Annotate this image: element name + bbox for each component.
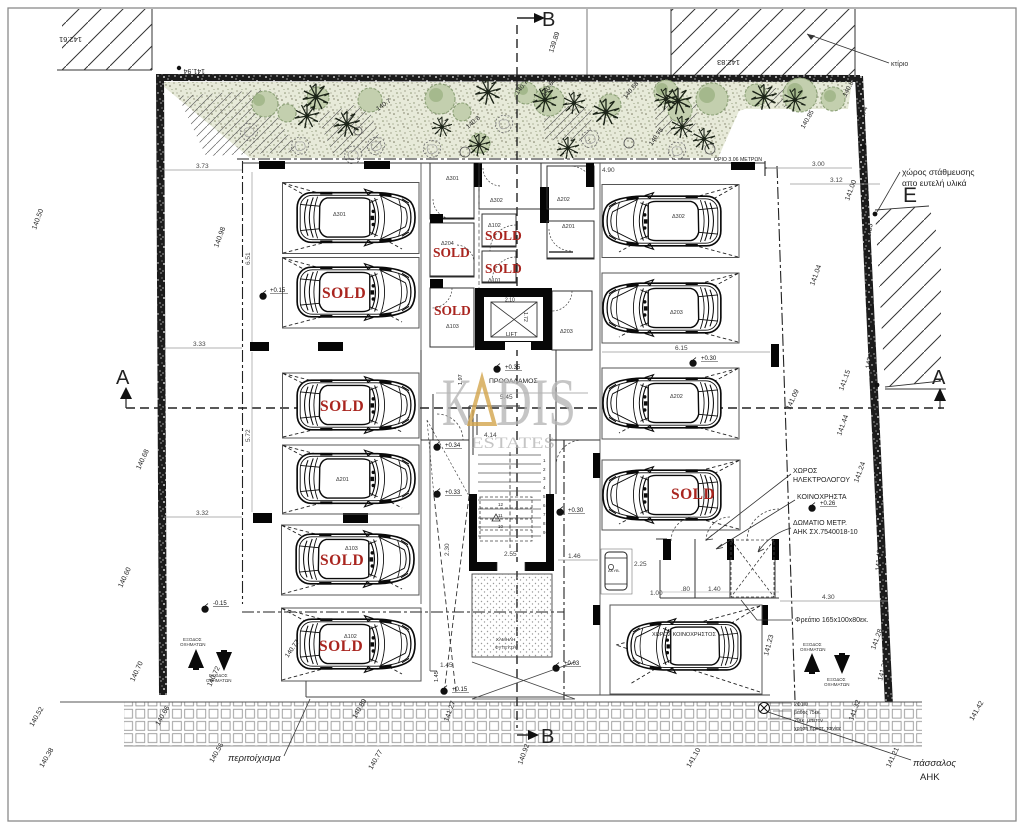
svg-text:ΦΥΤΕΥΣΗ: ΦΥΤΕΥΣΗ [495,645,516,650]
svg-text:ESTATES: ESTATES [471,435,555,452]
svg-text:SOLD: SOLD [320,552,364,569]
svg-text:20εκ. μπετόν: 20εκ. μπετόν [794,717,823,724]
svg-text:ΔΚΥΒ.: ΔΚΥΒ. [608,568,620,573]
svg-text:+0.34: +0.34 [445,443,461,449]
svg-text:Δ301: Δ301 [333,212,346,218]
svg-text:B: B [542,9,555,31]
svg-text:ΔΩΜΑΤΙΟ ΜΕΤΡ.: ΔΩΜΑΤΙΟ ΜΕΤΡ. [793,520,847,527]
svg-text:ΟΧΗΜΑΤΩΝ: ΟΧΗΜΑΤΩΝ [800,647,825,652]
svg-text:SOLD: SOLD [671,486,715,503]
svg-text:+0.30: +0.30 [568,508,584,514]
svg-text:πάσσαλος: πάσσαλος [913,758,956,769]
svg-text:ΟΧΗΜΑΤΩΝ: ΟΧΗΜΑΤΩΝ [824,682,849,687]
svg-text:+0.15: +0.15 [270,288,286,294]
svg-text:Δ302: Δ302 [672,214,685,220]
svg-text:B: B [541,726,554,748]
svg-text:12: 12 [498,502,504,507]
svg-text:2.30: 2.30 [444,543,451,556]
svg-text:3.33: 3.33 [193,341,206,348]
svg-text:5.72: 5.72 [245,429,252,442]
svg-text:Δ202: Δ202 [557,197,570,203]
svg-text:SOLD: SOLD [322,285,366,302]
svg-text:K: K [442,364,472,440]
svg-text:DIS: DIS [496,364,576,440]
svg-text:1.45: 1.45 [434,671,440,682]
svg-text:Δ301: Δ301 [446,176,459,182]
svg-text:3.73: 3.73 [196,163,209,170]
svg-text:ΧΩΡΟΣ ΚΟΙΝΟΧΡΗΣΤΟΣ: ΧΩΡΟΣ ΚΟΙΝΟΧΡΗΣΤΟΣ [652,632,716,638]
svg-text:ΚΟΙΝΟΧΡΗΣΤΑ: ΚΟΙΝΟΧΡΗΣΤΑ [797,494,847,501]
svg-text:1.00: 1.00 [650,590,663,597]
svg-text:1.72: 1.72 [522,312,528,322]
svg-text:ΟΧΗΜΑΤΩΝ: ΟΧΗΜΑΤΩΝ [180,642,205,647]
svg-text:SOLD: SOLD [319,638,363,655]
svg-text:4.30: 4.30 [822,594,835,601]
svg-text:2.55: 2.55 [504,551,517,558]
svg-text:141.94: 141.94 [183,67,205,74]
svg-text:Δ203: Δ203 [560,329,573,335]
svg-text:SOLD: SOLD [320,398,364,415]
svg-text:ΧΩΡΟΣ: ΧΩΡΟΣ [793,468,818,475]
svg-text:1.45: 1.45 [440,662,453,669]
svg-text:περιτοίχισμα: περιτοίχισμα [228,753,281,764]
svg-text:+0.03: +0.03 [564,661,580,667]
svg-text:Δ201: Δ201 [336,477,349,483]
svg-text:6.51: 6.51 [245,252,252,265]
svg-text:+0.26: +0.26 [820,501,836,507]
svg-text:Δ203: Δ203 [670,310,683,316]
svg-text:απο ευτελή υλικά: απο ευτελή υλικά [902,178,967,188]
svg-text:ΧΑΜΗΛΗ: ΧΑΜΗΛΗ [496,637,515,642]
svg-text:ΑΗΚ: ΑΗΚ [920,772,940,783]
svg-text:Δ201: Δ201 [562,224,575,230]
svg-text:LIFT: LIFT [506,332,518,338]
svg-text:Δ103: Δ103 [446,324,459,330]
svg-text:3.32: 3.32 [196,510,209,517]
svg-text:SOLD: SOLD [434,303,471,318]
svg-text:3.00: 3.00 [812,161,825,168]
svg-text:142.83: 142.83 [717,58,740,67]
svg-text:Φρεάτιο 165x100x80εκ.: Φρεάτιο 165x100x80εκ. [795,616,869,624]
svg-text:SOLD: SOLD [485,228,522,243]
svg-text:3.12: 3.12 [830,177,843,184]
svg-text:SOLD: SOLD [485,261,522,276]
svg-text:2.25: 2.25 [634,561,647,568]
svg-text:-0.15: -0.15 [213,601,227,607]
svg-text:1.46: 1.46 [568,553,581,560]
svg-text:Δ202: Δ202 [670,394,683,400]
svg-text:βάθος 75εκ.: βάθος 75εκ. [794,709,821,716]
svg-text:+0.30: +0.30 [701,356,717,362]
svg-text:2.10: 2.10 [505,298,515,304]
svg-text:4.90: 4.90 [602,167,615,174]
svg-text:Δ101: Δ101 [488,278,501,284]
svg-text:κτίριο: κτίριο [891,60,908,68]
svg-text:ΑΗΚ ΣΧ.7540018-10: ΑΗΚ ΣΧ.7540018-10 [793,529,858,536]
svg-text:A: A [116,367,130,389]
svg-text:11: 11 [498,513,503,518]
svg-text:6.15: 6.15 [675,345,688,352]
svg-text:+0.15: +0.15 [452,687,468,693]
svg-text:10: 10 [498,524,504,529]
svg-text:ΗΛΕΚΤΡΟΛΟΓΟΥ: ΗΛΕΚΤΡΟΛΟΓΟΥ [793,477,850,484]
svg-text:χώρος στάθμευσης: χώρος στάθμευσης [902,167,974,177]
svg-text:+0.33: +0.33 [445,490,461,496]
svg-text:142.61: 142.61 [59,35,82,44]
svg-text:2Φ1Ι0: 2Φ1Ι0 [794,702,808,708]
svg-text:Δ302: Δ302 [490,198,503,204]
